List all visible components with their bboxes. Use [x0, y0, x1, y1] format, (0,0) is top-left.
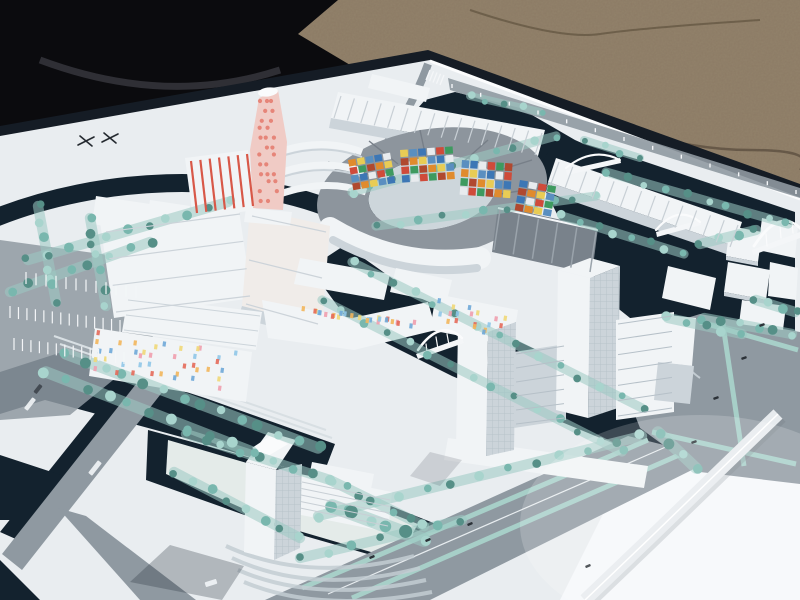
model-tree — [501, 101, 508, 108]
confetti-dot — [378, 316, 382, 321]
mosaic-tile — [525, 197, 534, 205]
model-tree — [189, 477, 198, 486]
model-tree — [602, 169, 610, 177]
mosaic-tile — [365, 156, 374, 164]
model-tree — [380, 521, 392, 533]
model-tree — [275, 525, 283, 533]
mosaic-tile — [419, 157, 427, 165]
mosaic-tile — [479, 161, 487, 169]
mosaic-tile — [503, 190, 511, 198]
model-tree — [350, 257, 359, 266]
model-tree — [183, 426, 192, 435]
mosaic-tile — [358, 165, 367, 173]
mosaic-tile — [538, 183, 547, 191]
pink-dot — [275, 189, 279, 193]
model-tree — [736, 319, 744, 327]
model-tree — [8, 288, 17, 297]
model-tree — [252, 420, 263, 431]
model-tree — [602, 142, 609, 149]
mosaic-tile — [419, 165, 427, 173]
mosaic-tile — [436, 147, 444, 155]
tower-face — [556, 270, 590, 418]
model-tree — [447, 361, 454, 368]
mosaic-tile — [496, 162, 504, 170]
model-tree — [366, 497, 375, 506]
mosaic-tile — [437, 164, 445, 172]
model-tree — [530, 136, 539, 145]
model-tree — [87, 241, 95, 249]
mosaic-tile — [385, 168, 394, 176]
pink-dot — [260, 119, 264, 123]
confetti-dot — [343, 311, 347, 316]
model-tree — [102, 364, 111, 373]
model-tree — [616, 150, 624, 158]
mosaic-tile — [478, 170, 486, 178]
model-tree — [496, 332, 503, 339]
model-tree — [45, 252, 53, 260]
model-tree — [38, 367, 49, 378]
mosaic-tile — [461, 160, 469, 168]
pink-dot — [272, 172, 276, 176]
model-tree — [628, 234, 635, 241]
model-tree — [640, 182, 647, 189]
model-tree — [558, 362, 565, 369]
mosaic-tile — [361, 181, 370, 189]
mosaic-tile — [352, 182, 361, 190]
junction-building-base — [654, 362, 694, 404]
island-tower-windows — [274, 464, 302, 560]
mosaic-tile — [469, 170, 477, 178]
model-tree — [504, 206, 511, 213]
mosaic-tile — [367, 164, 376, 172]
confetti-dot — [331, 314, 335, 319]
mosaic-tile — [410, 157, 418, 165]
model-tree — [127, 243, 136, 252]
model-tree — [227, 437, 238, 448]
model-tree — [144, 408, 154, 418]
pink-dot — [270, 145, 274, 149]
mosaic-tile — [547, 185, 556, 193]
model-tree — [122, 398, 131, 407]
model-tree — [446, 480, 455, 489]
pink-dot — [265, 172, 269, 176]
confetti-dot — [301, 306, 305, 311]
mosaic-tile — [544, 201, 553, 209]
mosaic-tile — [477, 179, 485, 187]
model-tree — [554, 134, 561, 141]
model-tree — [320, 298, 327, 305]
model-tree — [242, 504, 251, 513]
mosaic-tile — [368, 171, 377, 179]
confetti-dot — [350, 313, 354, 318]
mosaic-tile — [411, 174, 419, 182]
model-tree — [325, 475, 335, 485]
mosaic-tile — [494, 189, 502, 197]
model-tree — [470, 374, 478, 382]
model-tree — [324, 549, 333, 558]
model-tree — [743, 210, 752, 219]
mosaic-tile — [420, 174, 428, 182]
pink-dot — [257, 152, 261, 156]
model-tree — [194, 399, 205, 410]
mosaic-tile — [519, 180, 528, 188]
mosaic-tile — [505, 163, 513, 171]
mosaic-tile — [387, 176, 396, 184]
confetti-dot — [409, 323, 413, 328]
mosaic-tile — [535, 199, 544, 207]
model-tree — [520, 102, 528, 110]
mosaic-tile — [517, 188, 526, 196]
model-tree — [208, 484, 218, 494]
model-tree — [766, 215, 773, 222]
mosaic-tile — [383, 153, 392, 161]
model-tree — [314, 513, 324, 523]
model-tree — [39, 232, 49, 242]
model-tree — [532, 459, 541, 468]
model-tree — [397, 221, 405, 229]
model-tree — [87, 214, 96, 223]
model-tree — [680, 250, 687, 257]
model-tree — [749, 225, 757, 233]
mosaic-tile — [533, 207, 542, 215]
model-tree — [86, 229, 96, 239]
pink-dot — [259, 172, 263, 176]
model-tree — [23, 278, 33, 288]
model-tree — [137, 378, 148, 389]
model-tree — [423, 351, 432, 360]
mosaic-tile — [460, 187, 468, 195]
model-tree — [274, 431, 283, 440]
model-tree — [344, 482, 352, 490]
confetti-dot — [339, 311, 343, 316]
mosaic-tile — [351, 174, 360, 182]
mosaic-tile — [357, 157, 366, 165]
pink-dot — [267, 179, 271, 183]
model-tree — [92, 250, 100, 258]
mosaic-tile — [461, 169, 469, 177]
mosaic-tile — [349, 167, 358, 175]
model-tree — [414, 216, 423, 225]
model-tree — [35, 219, 44, 228]
model-tree — [160, 385, 169, 394]
model-tree — [716, 327, 726, 337]
model-tree — [474, 471, 484, 481]
pink-dot — [265, 145, 269, 149]
model-tree — [596, 222, 604, 230]
mosaic-tile — [543, 209, 552, 217]
model-tree — [100, 302, 108, 310]
mosaic-tile — [477, 188, 485, 196]
pink-dot — [265, 126, 269, 130]
model-tree — [295, 532, 304, 541]
model-tree — [624, 173, 633, 182]
pink-dot — [259, 199, 263, 203]
model-tree — [61, 375, 70, 384]
model-tree — [412, 287, 421, 296]
model-tree — [512, 340, 520, 348]
mosaic-tile — [515, 204, 524, 212]
pink-dot — [269, 99, 273, 103]
model-tree — [296, 553, 304, 561]
mosaic-tile — [524, 205, 533, 213]
model-tree — [295, 436, 305, 446]
model-tree — [479, 206, 488, 215]
model-tree — [80, 358, 91, 369]
model-tree — [482, 99, 488, 105]
tower-face — [456, 326, 488, 456]
model-tree — [540, 110, 546, 116]
mosaic-tile — [427, 148, 435, 156]
model-tree — [768, 325, 778, 335]
mosaic-tile — [528, 182, 537, 190]
model-tree — [384, 329, 391, 336]
pink-dot — [266, 199, 270, 203]
confetti-dot — [313, 308, 317, 313]
model-tree — [376, 533, 384, 541]
model-tree — [574, 429, 581, 436]
pink-dot — [264, 162, 268, 166]
model-tree — [749, 296, 757, 304]
mosaic-tile — [446, 163, 454, 171]
mosaic-tile — [546, 193, 555, 201]
model-tree — [788, 332, 796, 340]
mosaic-tile — [370, 179, 379, 187]
mosaic-tile — [487, 171, 495, 179]
mosaic-tile — [469, 179, 477, 187]
pink-dot — [273, 179, 277, 183]
confetti-dot — [365, 318, 369, 323]
model-tree — [407, 338, 415, 346]
model-tree — [781, 218, 789, 226]
confetti-dot — [396, 321, 400, 326]
model-tree — [148, 238, 158, 248]
model-tree — [424, 485, 432, 493]
model-tree — [250, 449, 259, 458]
pink-dot — [265, 99, 269, 103]
pink-dot — [270, 109, 274, 113]
model-tree — [269, 457, 277, 465]
model-tree — [374, 222, 381, 229]
mosaic-tile — [428, 156, 436, 164]
model-tree — [462, 211, 470, 219]
model-tree — [182, 210, 192, 220]
model-tree — [647, 237, 655, 245]
mosaic-tile — [495, 171, 503, 179]
model-tree — [660, 245, 669, 254]
model-tree — [368, 271, 375, 278]
confetti-dot — [358, 315, 362, 320]
model-tree — [429, 301, 436, 308]
model-tree — [222, 497, 230, 505]
confetti-dot — [318, 310, 322, 315]
confetti-dot — [413, 320, 417, 325]
mosaic-tile — [348, 159, 357, 167]
model-tree — [105, 252, 113, 260]
model-tree — [573, 375, 581, 383]
model-tree — [619, 392, 626, 399]
mosaic-tile — [445, 155, 453, 163]
model-tree — [289, 465, 298, 474]
model-tree — [439, 212, 446, 219]
model-tree — [83, 385, 93, 395]
mosaic-tile — [374, 154, 383, 162]
mosaic-tile — [503, 181, 511, 189]
confetti-dot — [324, 312, 328, 317]
mosaic-tile — [445, 146, 453, 154]
photo-of-architectural-scale-model — [0, 0, 800, 600]
model-tree — [504, 464, 512, 472]
mosaic-tile — [429, 173, 437, 181]
model-tree — [166, 414, 177, 425]
pink-dot — [258, 136, 262, 140]
model-tree — [456, 518, 464, 526]
model-tree — [702, 321, 711, 330]
mosaic-tile — [470, 161, 478, 169]
scale-model-scene — [0, 0, 800, 600]
mosaic-tile — [418, 148, 426, 156]
pink-dot — [272, 136, 276, 140]
pink-dot — [258, 126, 262, 130]
model-tree — [216, 441, 224, 449]
model-tree — [261, 516, 271, 526]
mosaic-tile — [486, 180, 494, 188]
model-tree — [557, 210, 566, 219]
confetti-dot — [385, 317, 389, 322]
model-tree — [349, 189, 358, 198]
mosaic-tile — [401, 158, 409, 166]
mosaic-tile — [468, 188, 476, 196]
model-tree — [96, 266, 105, 275]
model-tree — [534, 352, 543, 361]
model-tree — [169, 470, 177, 478]
model-tree — [433, 521, 443, 531]
mosaic-tile — [410, 166, 418, 174]
mosaic-tile — [377, 170, 386, 178]
mosaic-tile — [375, 162, 384, 170]
pink-dot — [264, 136, 268, 140]
mosaic-tile — [400, 149, 408, 157]
model-tree — [237, 415, 247, 425]
mosaic-tile — [378, 178, 387, 186]
mosaic-tile — [359, 173, 368, 181]
model-tree — [582, 138, 588, 144]
model-tree — [37, 200, 45, 208]
mosaic-tile — [428, 165, 436, 173]
model-tree — [180, 394, 190, 404]
model-tree — [217, 406, 226, 415]
model-tree — [205, 431, 215, 441]
model-tree — [417, 519, 427, 529]
model-tree — [486, 382, 495, 391]
model-tree — [394, 492, 404, 502]
model-tree — [64, 243, 74, 253]
mosaic-tile — [516, 196, 525, 204]
confetti-dot — [390, 319, 394, 324]
model-tree — [67, 265, 76, 274]
model-tree — [706, 198, 713, 205]
model-tree — [683, 189, 692, 198]
mosaic-tile — [384, 160, 393, 168]
pink-dot — [258, 99, 262, 103]
model-tree — [236, 449, 245, 458]
mosaic-tile — [447, 172, 455, 180]
model-tree — [43, 266, 52, 275]
model-tree — [82, 260, 92, 270]
model-tree — [637, 155, 643, 161]
mosaic-tile — [402, 175, 410, 183]
model-tree — [21, 254, 29, 262]
pink-dot — [263, 109, 267, 113]
pink-dot — [272, 152, 276, 156]
model-tree — [694, 240, 702, 248]
model-tree — [595, 383, 604, 392]
model-tree — [608, 230, 617, 239]
pink-dot — [258, 162, 262, 166]
model-tree — [468, 91, 476, 99]
model-tree — [577, 219, 584, 226]
mosaic-tile — [536, 191, 545, 199]
model-tree — [105, 391, 116, 402]
model-tree — [778, 304, 788, 314]
model-tree — [764, 298, 773, 307]
model-tree — [161, 214, 170, 223]
mosaic-tile — [487, 162, 495, 170]
pink-dot — [258, 189, 262, 193]
model-tree — [102, 232, 111, 241]
model-tree — [683, 319, 691, 327]
cube — [768, 262, 798, 300]
mosaic-tile — [401, 166, 409, 174]
model-tree — [662, 185, 670, 193]
mosaic-tile — [486, 189, 494, 197]
pink-dot — [269, 119, 273, 123]
mosaic-tile — [527, 190, 536, 198]
model-tree — [315, 441, 326, 452]
model-tree — [716, 316, 726, 326]
model-tree — [390, 279, 398, 287]
model-tree — [493, 148, 500, 155]
mosaic-tile — [409, 149, 417, 157]
model-tree — [399, 525, 412, 538]
mosaic-tile — [495, 180, 503, 188]
model-tree — [569, 197, 576, 204]
model-tree — [346, 540, 356, 550]
model-tree — [722, 202, 730, 210]
model-tree — [53, 299, 61, 307]
model-tree — [308, 468, 318, 478]
mosaic-tile — [460, 178, 468, 186]
model-tree — [737, 330, 745, 338]
mosaic-tile — [438, 172, 446, 180]
model-tree — [407, 514, 416, 523]
mosaic-tile — [437, 155, 445, 163]
model-tree — [390, 509, 398, 517]
mosaic-tile — [504, 172, 512, 180]
